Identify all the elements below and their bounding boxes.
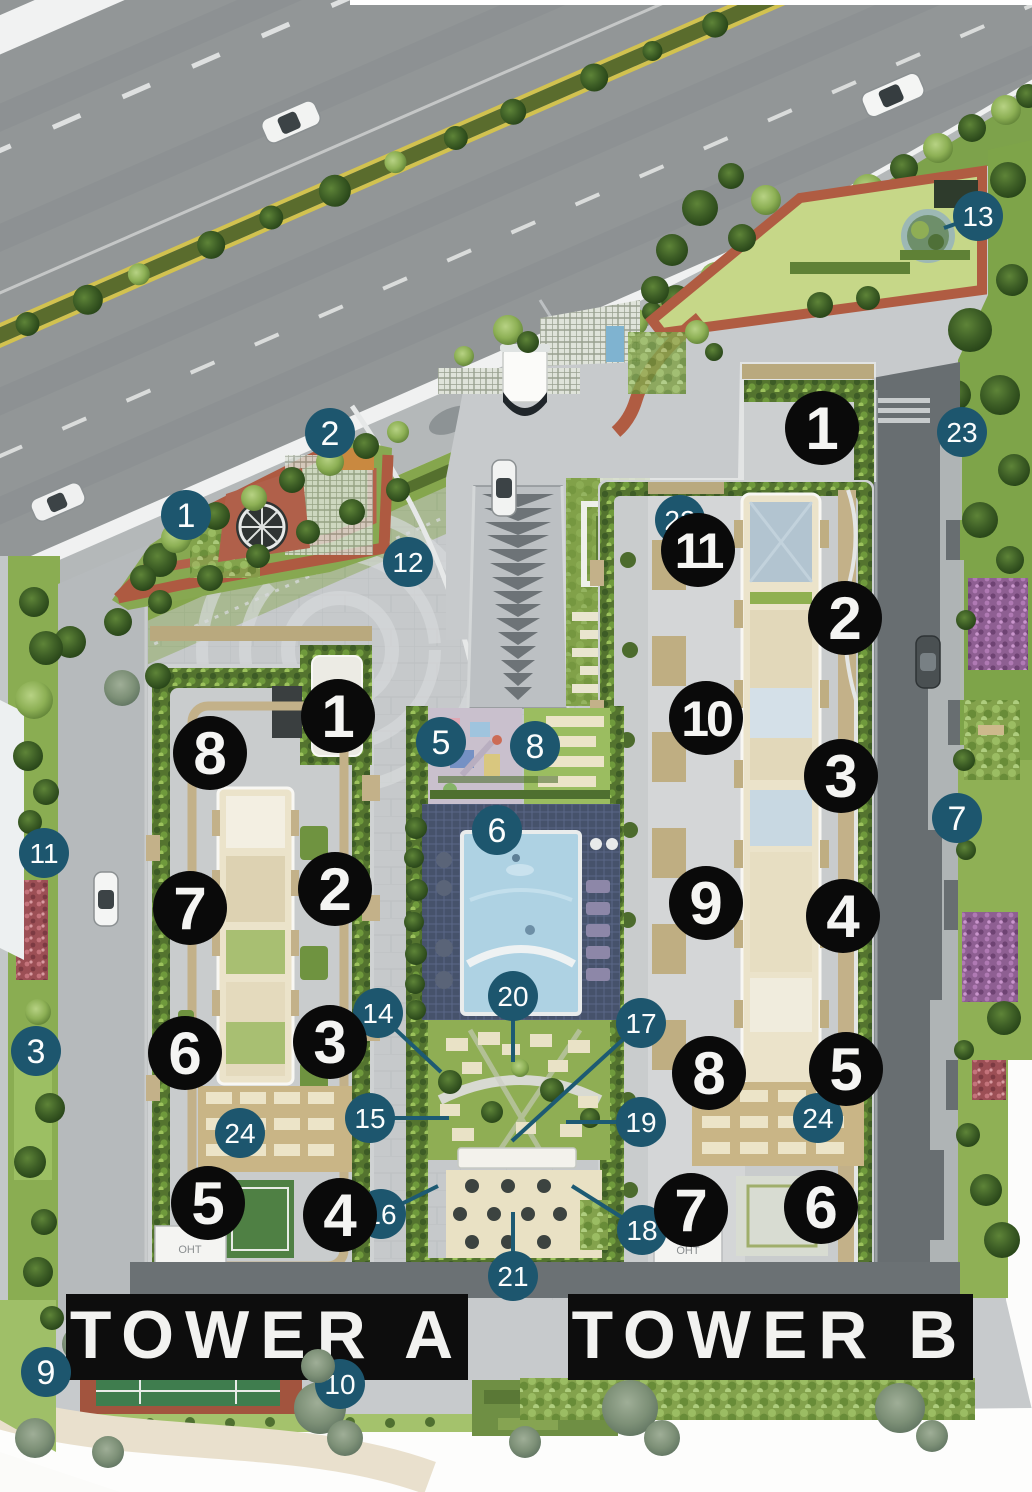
svg-text:8: 8	[193, 720, 226, 787]
svg-text:11: 11	[675, 523, 724, 579]
svg-text:2: 2	[318, 856, 351, 923]
svg-text:6: 6	[168, 1020, 201, 1087]
svg-text:8: 8	[526, 728, 545, 766]
svg-text:TOWER B: TOWER B	[572, 1297, 969, 1373]
svg-text:19: 19	[625, 1107, 656, 1138]
svg-text:9: 9	[37, 1354, 56, 1392]
svg-text:2: 2	[321, 415, 340, 453]
svg-text:7: 7	[948, 800, 967, 838]
svg-text:8: 8	[692, 1040, 725, 1107]
svg-text:TOWER A: TOWER A	[70, 1297, 464, 1373]
svg-text:3: 3	[27, 1033, 46, 1071]
svg-text:2: 2	[828, 585, 861, 652]
svg-text:17: 17	[625, 1008, 656, 1039]
svg-text:10: 10	[681, 691, 732, 747]
svg-text:OHT: OHT	[178, 1244, 202, 1256]
svg-text:24: 24	[224, 1118, 255, 1149]
svg-text:1: 1	[177, 497, 196, 535]
svg-text:5: 5	[432, 724, 451, 762]
svg-text:1: 1	[805, 395, 838, 462]
svg-text:6: 6	[488, 812, 507, 850]
svg-text:12: 12	[392, 547, 423, 578]
svg-text:7: 7	[173, 875, 206, 942]
svg-text:18: 18	[626, 1215, 657, 1246]
svg-text:1: 1	[321, 683, 354, 750]
svg-text:3: 3	[824, 743, 857, 810]
svg-text:4: 4	[323, 1182, 357, 1249]
svg-text:3: 3	[313, 1009, 346, 1076]
svg-text:4: 4	[826, 883, 860, 950]
svg-text:20: 20	[497, 981, 528, 1012]
svg-text:21: 21	[497, 1261, 528, 1292]
svg-text:24: 24	[802, 1103, 833, 1134]
svg-text:5: 5	[829, 1036, 862, 1103]
svg-text:6: 6	[804, 1174, 837, 1241]
svg-text:15: 15	[354, 1103, 385, 1134]
svg-text:23: 23	[946, 417, 977, 448]
svg-text:5: 5	[191, 1170, 224, 1237]
svg-text:7: 7	[674, 1177, 707, 1244]
svg-text:13: 13	[962, 201, 993, 232]
svg-text:14: 14	[362, 998, 393, 1029]
svg-text:9: 9	[689, 870, 722, 937]
svg-text:11: 11	[29, 838, 58, 869]
